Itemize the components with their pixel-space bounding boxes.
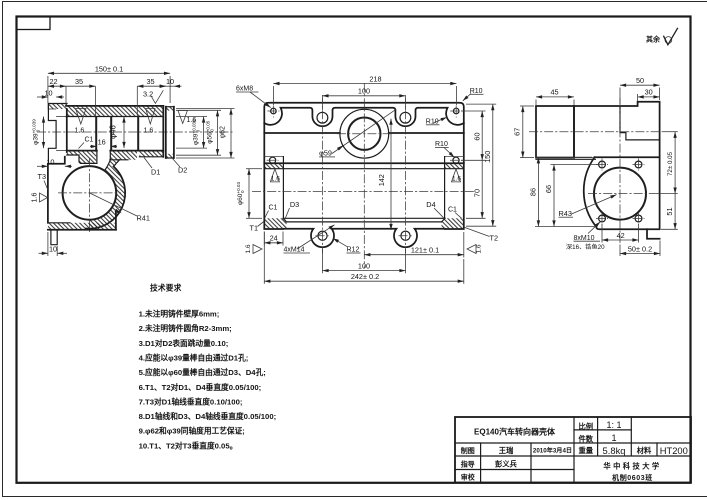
svg-text:C1: C1	[85, 137, 94, 144]
svg-text:142: 142	[377, 174, 386, 186]
svg-text:242± 0.2: 242± 0.2	[351, 272, 379, 281]
svg-text:24: 24	[270, 234, 278, 243]
svg-text:1.6: 1.6	[271, 175, 280, 182]
svg-text:30: 30	[645, 88, 653, 97]
svg-text:10.T1、T2对T3垂直度0.05。: 10.T1、T2对T3垂直度0.05。	[139, 440, 238, 450]
svg-text:1.6: 1.6	[32, 193, 39, 203]
svg-text:9.φ62和φ39同轴度用工艺保证;: 9.φ62和φ39同轴度用工艺保证;	[139, 426, 245, 436]
svg-text:10: 10	[46, 157, 54, 166]
svg-text:72± 0.05: 72± 0.05	[667, 151, 674, 176]
svg-text:1.6: 1.6	[75, 128, 85, 135]
svg-text:1: 1: 1: 1	[606, 420, 621, 430]
svg-text:16: 16	[98, 137, 106, 146]
svg-text:T3: T3	[38, 172, 47, 181]
svg-text:1.6: 1.6	[144, 128, 154, 135]
svg-text:121± 0.1: 121± 0.1	[411, 246, 439, 255]
svg-text:T1: T1	[250, 224, 259, 233]
svg-text:王瑞: 王瑞	[499, 446, 514, 455]
svg-text:10: 10	[44, 89, 52, 98]
svg-text:彭义兵: 彭义兵	[495, 459, 518, 468]
svg-text:机制0603班: 机制0603班	[612, 473, 653, 482]
svg-text:R41: R41	[137, 214, 150, 223]
svg-text:R12: R12	[347, 247, 360, 254]
svg-text:150± 0.1: 150± 0.1	[95, 65, 123, 74]
svg-text:218: 218	[369, 74, 381, 83]
svg-text:其余: 其余	[646, 35, 661, 44]
svg-text:材料: 材料	[637, 446, 652, 455]
svg-text:22: 22	[49, 77, 57, 86]
svg-text:件数: 件数	[579, 435, 594, 444]
svg-text:2.未注明铸件圆角R2-3mm;: 2.未注明铸件圆角R2-3mm;	[139, 323, 232, 333]
svg-text:1.6: 1.6	[245, 244, 252, 253]
svg-text:51: 51	[665, 207, 674, 215]
svg-text:φ62: φ62	[220, 126, 227, 138]
svg-text:4.应能以φ39量棒自由通过D1孔;: 4.应能以φ39量棒自由通过D1孔;	[139, 353, 249, 363]
svg-text:60: 60	[472, 132, 481, 140]
svg-text:8.D1轴线和D3、D4轴线垂直度0.05/100;: 8.D1轴线和D3、D4轴线垂直度0.05/100;	[139, 411, 277, 421]
svg-text:C1: C1	[448, 207, 457, 214]
svg-text:6xM8: 6xM8	[236, 86, 253, 93]
svg-text:技术要求: 技术要求	[150, 283, 182, 293]
svg-text:1.未注明铸件壁厚6mm;: 1.未注明铸件壁厚6mm;	[139, 309, 220, 319]
svg-text:φ46: φ46	[109, 125, 118, 139]
svg-text:HT200: HT200	[660, 445, 688, 456]
svg-text:8xM10: 8xM10	[574, 235, 595, 242]
svg-text:45: 45	[550, 88, 558, 97]
svg-text:50± 0.2: 50± 0.2	[628, 244, 652, 253]
svg-text:100: 100	[358, 87, 370, 96]
svg-text:φ59: φ59	[319, 148, 332, 157]
svg-text:1: 1	[611, 433, 616, 443]
svg-text:1.6: 1.6	[452, 175, 461, 182]
svg-text:66: 66	[544, 185, 553, 193]
svg-text:70: 70	[472, 189, 481, 197]
svg-text:35: 35	[75, 77, 83, 86]
svg-text:C1: C1	[269, 205, 278, 212]
svg-text:6.T1、T2对D1、D4垂直度0.05/100;: 6.T1、T2对D1、D4垂直度0.05/100;	[139, 382, 262, 392]
svg-text:50: 50	[636, 76, 644, 85]
svg-text:4xM14: 4xM14	[284, 247, 305, 254]
svg-text:华中科技大学: 华中科技大学	[603, 461, 661, 470]
svg-text:T2: T2	[490, 234, 499, 243]
svg-text:D3: D3	[290, 200, 299, 209]
svg-text:制图: 制图	[461, 446, 475, 455]
svg-text:100: 100	[358, 261, 370, 270]
svg-text:2010年3月4日: 2010年3月4日	[533, 447, 572, 455]
svg-text:深16、锆鱼20: 深16、锆鱼20	[566, 243, 605, 251]
svg-text:3.D1对D2表面跳动量0.10;: 3.D1对D2表面跳动量0.10;	[139, 338, 229, 348]
svg-text:10: 10	[166, 77, 174, 86]
svg-text:42: 42	[617, 231, 625, 240]
svg-text:指导: 指导	[461, 459, 475, 468]
svg-text:86: 86	[528, 188, 537, 196]
svg-text:10: 10	[49, 244, 57, 253]
svg-text:150: 150	[483, 151, 492, 163]
svg-text:1.6: 1.6	[475, 244, 482, 253]
svg-text:重量: 重量	[579, 446, 594, 455]
svg-text:5.应能以φ60量棒自由通过D3、D4孔;: 5.应能以φ60量棒自由通过D3、D4孔;	[139, 367, 266, 377]
svg-text:审校: 审校	[461, 473, 476, 482]
svg-text:R43: R43	[559, 209, 572, 218]
svg-text:5.8kq: 5.8kq	[603, 445, 626, 456]
svg-text:EQ140汽车转向器壳体: EQ140汽车转向器壳体	[474, 427, 556, 437]
svg-text:35: 35	[146, 77, 154, 86]
svg-text:D4: D4	[426, 200, 435, 209]
svg-text:D1: D1	[151, 168, 160, 177]
svg-text:7.T3对D1轴线垂直度0.10/100;: 7.T3对D1轴线垂直度0.10/100;	[139, 396, 243, 406]
svg-text:67: 67	[513, 128, 522, 136]
svg-text:比例: 比例	[579, 422, 594, 431]
